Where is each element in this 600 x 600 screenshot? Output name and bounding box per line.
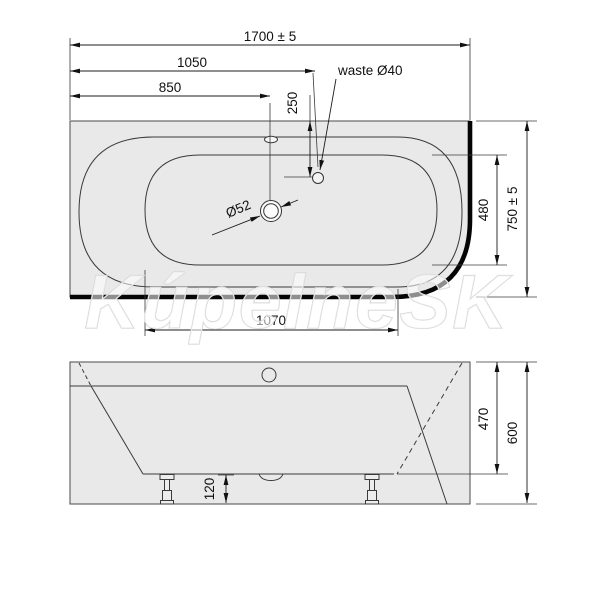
side-view — [70, 362, 470, 504]
tub-outline-side — [70, 362, 470, 504]
overflow-slot — [265, 136, 278, 142]
dim-text-120: 120 — [202, 478, 217, 501]
dim-text-850: 850 — [159, 80, 182, 95]
bathtub-dimension-drawing: 1700 ± 5 1050 850 250 waste Ø40 Ø52 1070 — [0, 0, 600, 600]
dim-text-600: 600 — [505, 422, 520, 445]
waste-label-text: waste Ø40 — [337, 63, 403, 78]
dim-text-480: 480 — [476, 199, 491, 222]
technical-drawing-page: 1700 ± 5 1050 850 250 waste Ø40 Ø52 1070 — [0, 0, 600, 600]
dim-text-250: 250 — [285, 92, 300, 115]
waste-hole — [313, 173, 324, 184]
kupelnesk-watermark: KúpelneSK — [85, 260, 513, 345]
dim-text-1050: 1050 — [177, 55, 207, 70]
dim-text-overall-width: 750 ± 5 — [505, 187, 520, 232]
dim-text-470: 470 — [476, 408, 491, 431]
dim-text-overall-length: 1700 ± 5 — [244, 29, 296, 44]
